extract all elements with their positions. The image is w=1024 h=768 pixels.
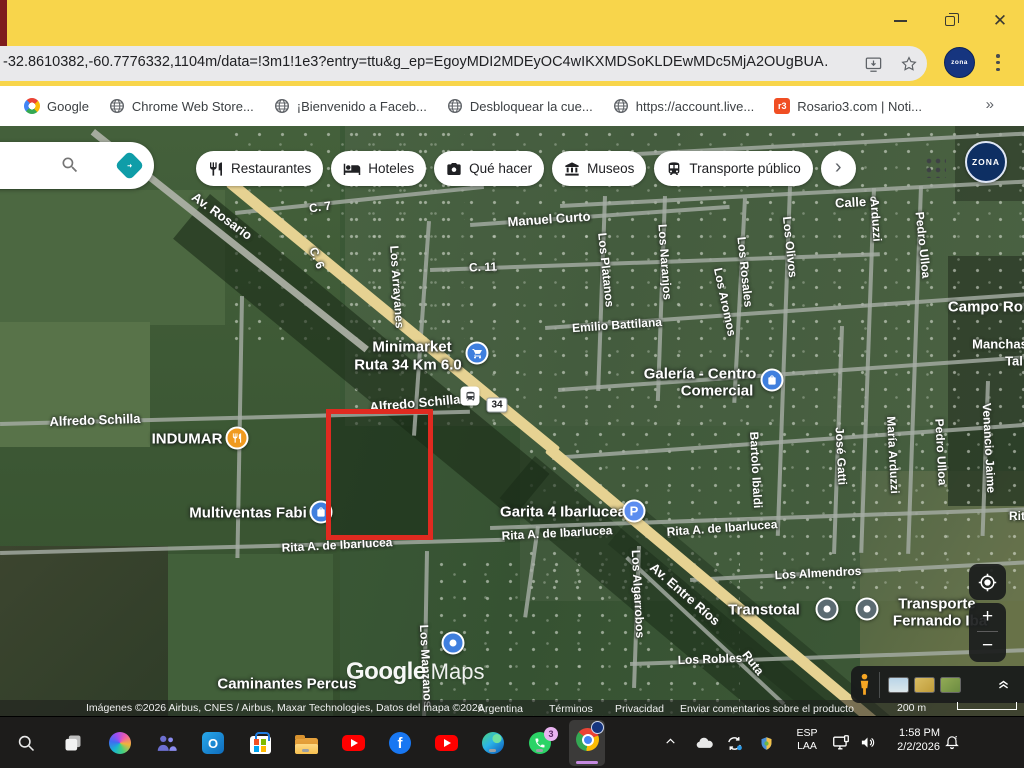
category-chip[interactable]: Restaurantes (196, 151, 323, 186)
map-canvas[interactable]: Av. RosarioC. 7C. 6Los ArrayanesManuel C… (0, 126, 1024, 716)
camera-icon (446, 161, 462, 177)
scale-label: 200 m (897, 702, 926, 714)
category-chip[interactable]: Hoteles (331, 151, 426, 186)
poi-layer: MinimarketRuta 34 Km 6.0Galería - Centro… (0, 126, 1024, 716)
poi-utensils-icon[interactable] (226, 427, 249, 450)
account-avatar[interactable]: ZONA (965, 141, 1007, 183)
whatsapp-badge: 3 (544, 727, 558, 741)
restore-icon (945, 16, 955, 26)
google-logo-icon (24, 98, 40, 114)
poi-dot-icon[interactable] (816, 598, 839, 621)
youtube-icon[interactable] (341, 731, 365, 755)
zoom-in-button[interactable]: + (969, 603, 1006, 631)
volume-icon[interactable] (859, 735, 876, 750)
poi-label: Multiventas Fabi (189, 505, 307, 522)
poi-cart-icon[interactable] (466, 342, 489, 365)
zoom-controls: + − (969, 603, 1006, 662)
chip-label: Museos (587, 161, 634, 176)
bookmark-label: Chrome Web Store... (132, 99, 254, 114)
browser-menu-button[interactable] (996, 51, 1000, 74)
poi-label: Transtotal (728, 602, 800, 619)
taskbar-search-icon[interactable] (14, 731, 38, 755)
scale-bar (957, 702, 1017, 710)
onedrive-icon[interactable] (695, 737, 714, 751)
time-text: 1:58 PM (878, 727, 940, 741)
poi-p-icon[interactable]: P (623, 500, 646, 523)
minimize-button[interactable] (884, 7, 916, 34)
poi-label: Galería - Centro (644, 366, 757, 383)
svg-text:z: z (955, 735, 958, 741)
pegman-icon[interactable] (858, 673, 871, 696)
red-area-annotation (326, 409, 433, 540)
attribution-link[interactable]: Términos (549, 703, 593, 715)
museum-icon (564, 161, 580, 177)
chrome-active-indicator (576, 761, 598, 764)
search-icon[interactable] (60, 155, 80, 180)
bookmarks-bar: GoogleChrome Web Store...¡Bienvenido a F… (0, 86, 1024, 126)
microsoft-store-icon[interactable] (248, 731, 272, 755)
category-chips: RestaurantesHotelesQué hacerMuseosTransp… (196, 151, 856, 186)
poi-label: Ruta 34 Km 6.0 (354, 357, 462, 374)
google-apps-grid-icon[interactable] (923, 155, 946, 178)
rosario3-favicon: r3 (774, 98, 790, 114)
globe-icon (613, 98, 629, 114)
poi-label: Transporte (898, 596, 976, 613)
chrome-profile-badge (591, 721, 604, 734)
sync-icon[interactable] (726, 735, 743, 752)
bookmarks-overflow-chevron[interactable]: » (986, 96, 994, 113)
file-explorer-icon[interactable] (294, 731, 318, 755)
imagery-thumbnail[interactable] (888, 677, 909, 693)
collapse-chevron-icon[interactable] (996, 678, 1011, 692)
poi-bag-icon[interactable] (761, 369, 784, 392)
task-view-icon[interactable] (61, 731, 85, 755)
bookmark-label: https://account.live... (636, 99, 755, 114)
bookmark-label: Google (47, 99, 89, 114)
attribution-link[interactable]: Enviar comentarios sobre el producto (680, 703, 854, 715)
imagery-attribution: Imágenes ©2026 Airbus, CNES / Airbus, Ma… (86, 702, 484, 714)
category-chip[interactable]: Transporte público (654, 151, 812, 186)
chip-label: Qué hacer (469, 161, 532, 176)
bookmark-star-icon[interactable] (898, 53, 920, 75)
desktop: ✕ -32.8610382,-60.7776332,1104m/data=!3m… (0, 0, 1024, 768)
teams-icon[interactable] (154, 731, 178, 755)
hotel-icon (343, 160, 361, 178)
imagery-thumbnail[interactable] (940, 677, 961, 693)
route-shield-badge: 34 (486, 398, 507, 413)
copilot-icon[interactable] (108, 731, 132, 755)
notifications-bell-icon[interactable]: z (944, 733, 960, 750)
globe-icon (274, 98, 290, 114)
search-box[interactable] (0, 142, 154, 189)
restore-button[interactable] (934, 7, 966, 34)
browser-toolbar: -32.8610382,-60.7776332,1104m/data=!3m1!… (0, 40, 1024, 86)
poi-label: Comercial (681, 383, 754, 400)
bookmark-item[interactable]: r3Rosario3.com | Noti... (774, 98, 922, 114)
browser-titlebar: ✕ (0, 0, 1024, 40)
directions-icon[interactable] (115, 151, 145, 181)
close-icon: ✕ (993, 11, 1007, 31)
chrome-icon[interactable] (569, 720, 605, 766)
poi-dot-icon[interactable] (442, 632, 465, 655)
bookmark-item[interactable]: ¡Bienvenido a Faceb... (274, 98, 427, 114)
network-icon[interactable] (832, 735, 850, 751)
windows-taskbar: O f 3 ES (0, 716, 1024, 768)
poi-label: INDUMAR (152, 431, 223, 448)
chip-label: Transporte público (689, 161, 800, 176)
whatsapp-icon[interactable]: 3 (528, 731, 552, 755)
date-text: 2/2/2026 (878, 741, 940, 755)
outlook-icon[interactable]: O (201, 731, 225, 755)
chip-label: Restaurantes (231, 161, 311, 176)
bookmark-item[interactable]: Desbloquear la cue... (447, 98, 593, 114)
my-location-button[interactable] (969, 564, 1006, 600)
poi-label: Garita 4 Ibarlucea (500, 504, 626, 521)
imagery-bar (851, 666, 1024, 703)
bookmark-item[interactable]: Chrome Web Store... (109, 98, 254, 114)
address-bar[interactable]: -32.8610382,-60.7776332,1104m/data=!3m1!… (0, 46, 927, 81)
close-button[interactable]: ✕ (984, 7, 1016, 34)
security-shield-icon[interactable] (759, 735, 774, 752)
category-chip[interactable]: Qué hacer (434, 151, 544, 186)
background-app-strip (0, 0, 7, 46)
globe-icon (447, 98, 463, 114)
zoom-out-button[interactable]: − (969, 632, 1006, 660)
tray-chevron-icon[interactable] (664, 735, 677, 748)
profile-avatar[interactable]: zona (944, 47, 975, 78)
bookmarks-list: GoogleChrome Web Store...¡Bienvenido a F… (24, 86, 922, 126)
language-indicator[interactable]: ESP LAA (791, 727, 823, 753)
install-app-icon[interactable] (862, 53, 884, 75)
category-chip[interactable]: Museos (552, 151, 646, 186)
minimize-icon (894, 20, 907, 22)
youtube-icon-2[interactable] (434, 731, 458, 755)
imagery-divider (879, 672, 880, 698)
attribution-link[interactable]: Argentina (478, 703, 523, 715)
edge-icon[interactable] (481, 731, 505, 755)
transit-icon (666, 161, 682, 177)
restaurant-icon (208, 161, 224, 177)
chips-more-button[interactable]: › (821, 151, 856, 186)
chip-label: Hoteles (368, 161, 414, 176)
language-line2: LAA (791, 740, 823, 753)
poi-dot-icon[interactable] (856, 598, 879, 621)
attribution-link[interactable]: Privacidad (615, 703, 664, 715)
imagery-thumbnail[interactable] (914, 677, 935, 693)
bookmark-label: ¡Bienvenido a Faceb... (297, 99, 427, 114)
bookmark-item[interactable]: https://account.live... (613, 98, 755, 114)
bookmark-label: Rosario3.com | Noti... (797, 99, 922, 114)
bookmark-item[interactable]: Google (24, 98, 89, 114)
url-text: -32.8610382,-60.7776332,1104m/data=!3m1!… (3, 54, 829, 70)
language-line1: ESP (791, 727, 823, 740)
bookmark-label: Desbloquear la cue... (470, 99, 593, 114)
attribution-bar: Imágenes ©2026 Airbus, CNES / Airbus, Ma… (0, 700, 1024, 716)
bus-stop-badge (461, 387, 480, 406)
clock[interactable]: 1:58 PM 2/2/2026 (878, 727, 940, 754)
globe-icon (109, 98, 125, 114)
facebook-icon[interactable]: f (388, 731, 412, 755)
poi-label: Caminantes Percus (217, 676, 356, 693)
poi-label: Minimarket (372, 339, 451, 356)
